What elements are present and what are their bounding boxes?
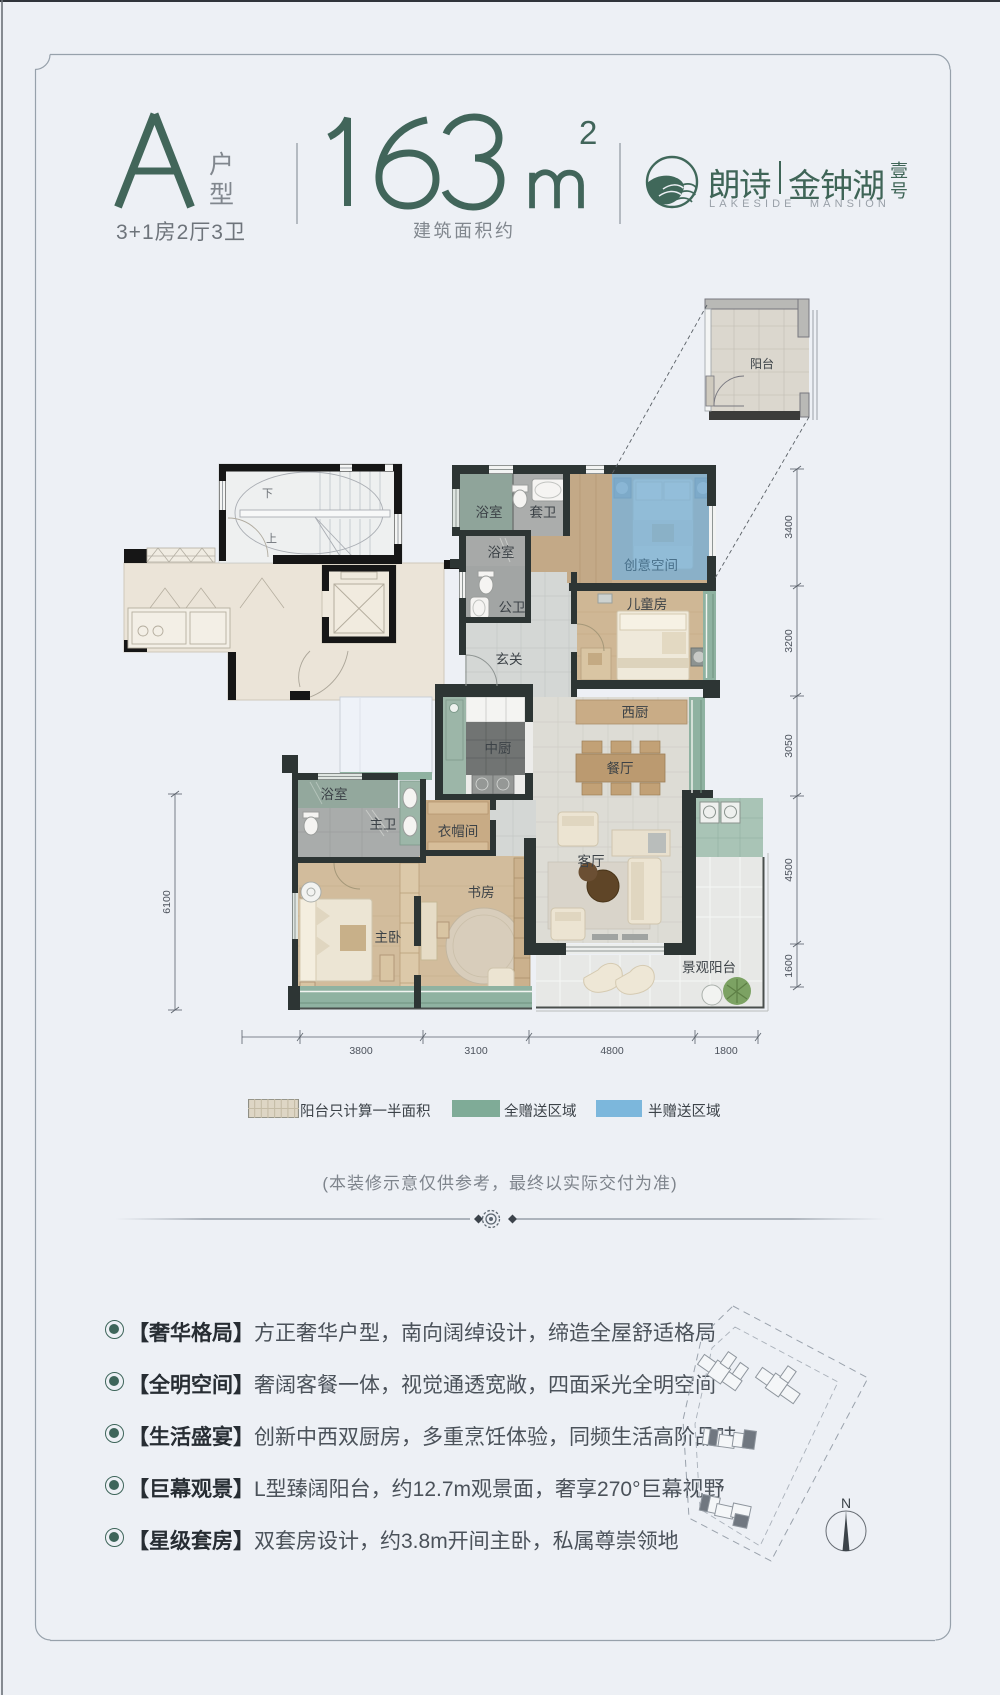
svg-text:玄关: 玄关: [496, 651, 523, 667]
svg-text:餐厅: 餐厅: [607, 761, 634, 776]
svg-text:3400: 3400: [783, 515, 795, 539]
svg-text:1600: 1600: [783, 954, 795, 978]
svg-text:3200: 3200: [783, 629, 795, 653]
svg-text:阳台: 阳台: [750, 356, 774, 371]
svg-text:4800: 4800: [600, 1045, 624, 1057]
svg-text:浴室: 浴室: [488, 544, 515, 560]
svg-text:1800: 1800: [714, 1045, 738, 1057]
svg-text:景观阳台: 景观阳台: [682, 960, 736, 975]
svg-text:儿童房: 儿童房: [627, 596, 668, 612]
svg-text:N: N: [841, 1495, 851, 1511]
svg-text:创意空间: 创意空间: [624, 557, 678, 573]
svg-text:衣帽间: 衣帽间: [438, 824, 479, 839]
svg-text:3100: 3100: [464, 1045, 488, 1057]
svg-text:公卫: 公卫: [499, 600, 526, 615]
svg-text:客厅: 客厅: [578, 853, 605, 869]
svg-text:书房: 书房: [468, 885, 495, 900]
svg-text:浴室: 浴室: [321, 786, 348, 802]
svg-text:西厨: 西厨: [622, 705, 649, 720]
svg-text:中厨: 中厨: [485, 741, 512, 756]
svg-text:3050: 3050: [783, 734, 795, 758]
svg-text:主卧: 主卧: [375, 930, 402, 945]
svg-text:浴室: 浴室: [476, 504, 503, 520]
svg-text:6100: 6100: [161, 890, 173, 914]
svg-text:套卫: 套卫: [530, 505, 557, 520]
svg-text:主卫: 主卫: [370, 817, 397, 832]
svg-text:4500: 4500: [783, 858, 795, 882]
svg-text:上: 上: [266, 532, 277, 545]
svg-text:下: 下: [262, 488, 273, 500]
svg-text:3800: 3800: [349, 1045, 373, 1057]
